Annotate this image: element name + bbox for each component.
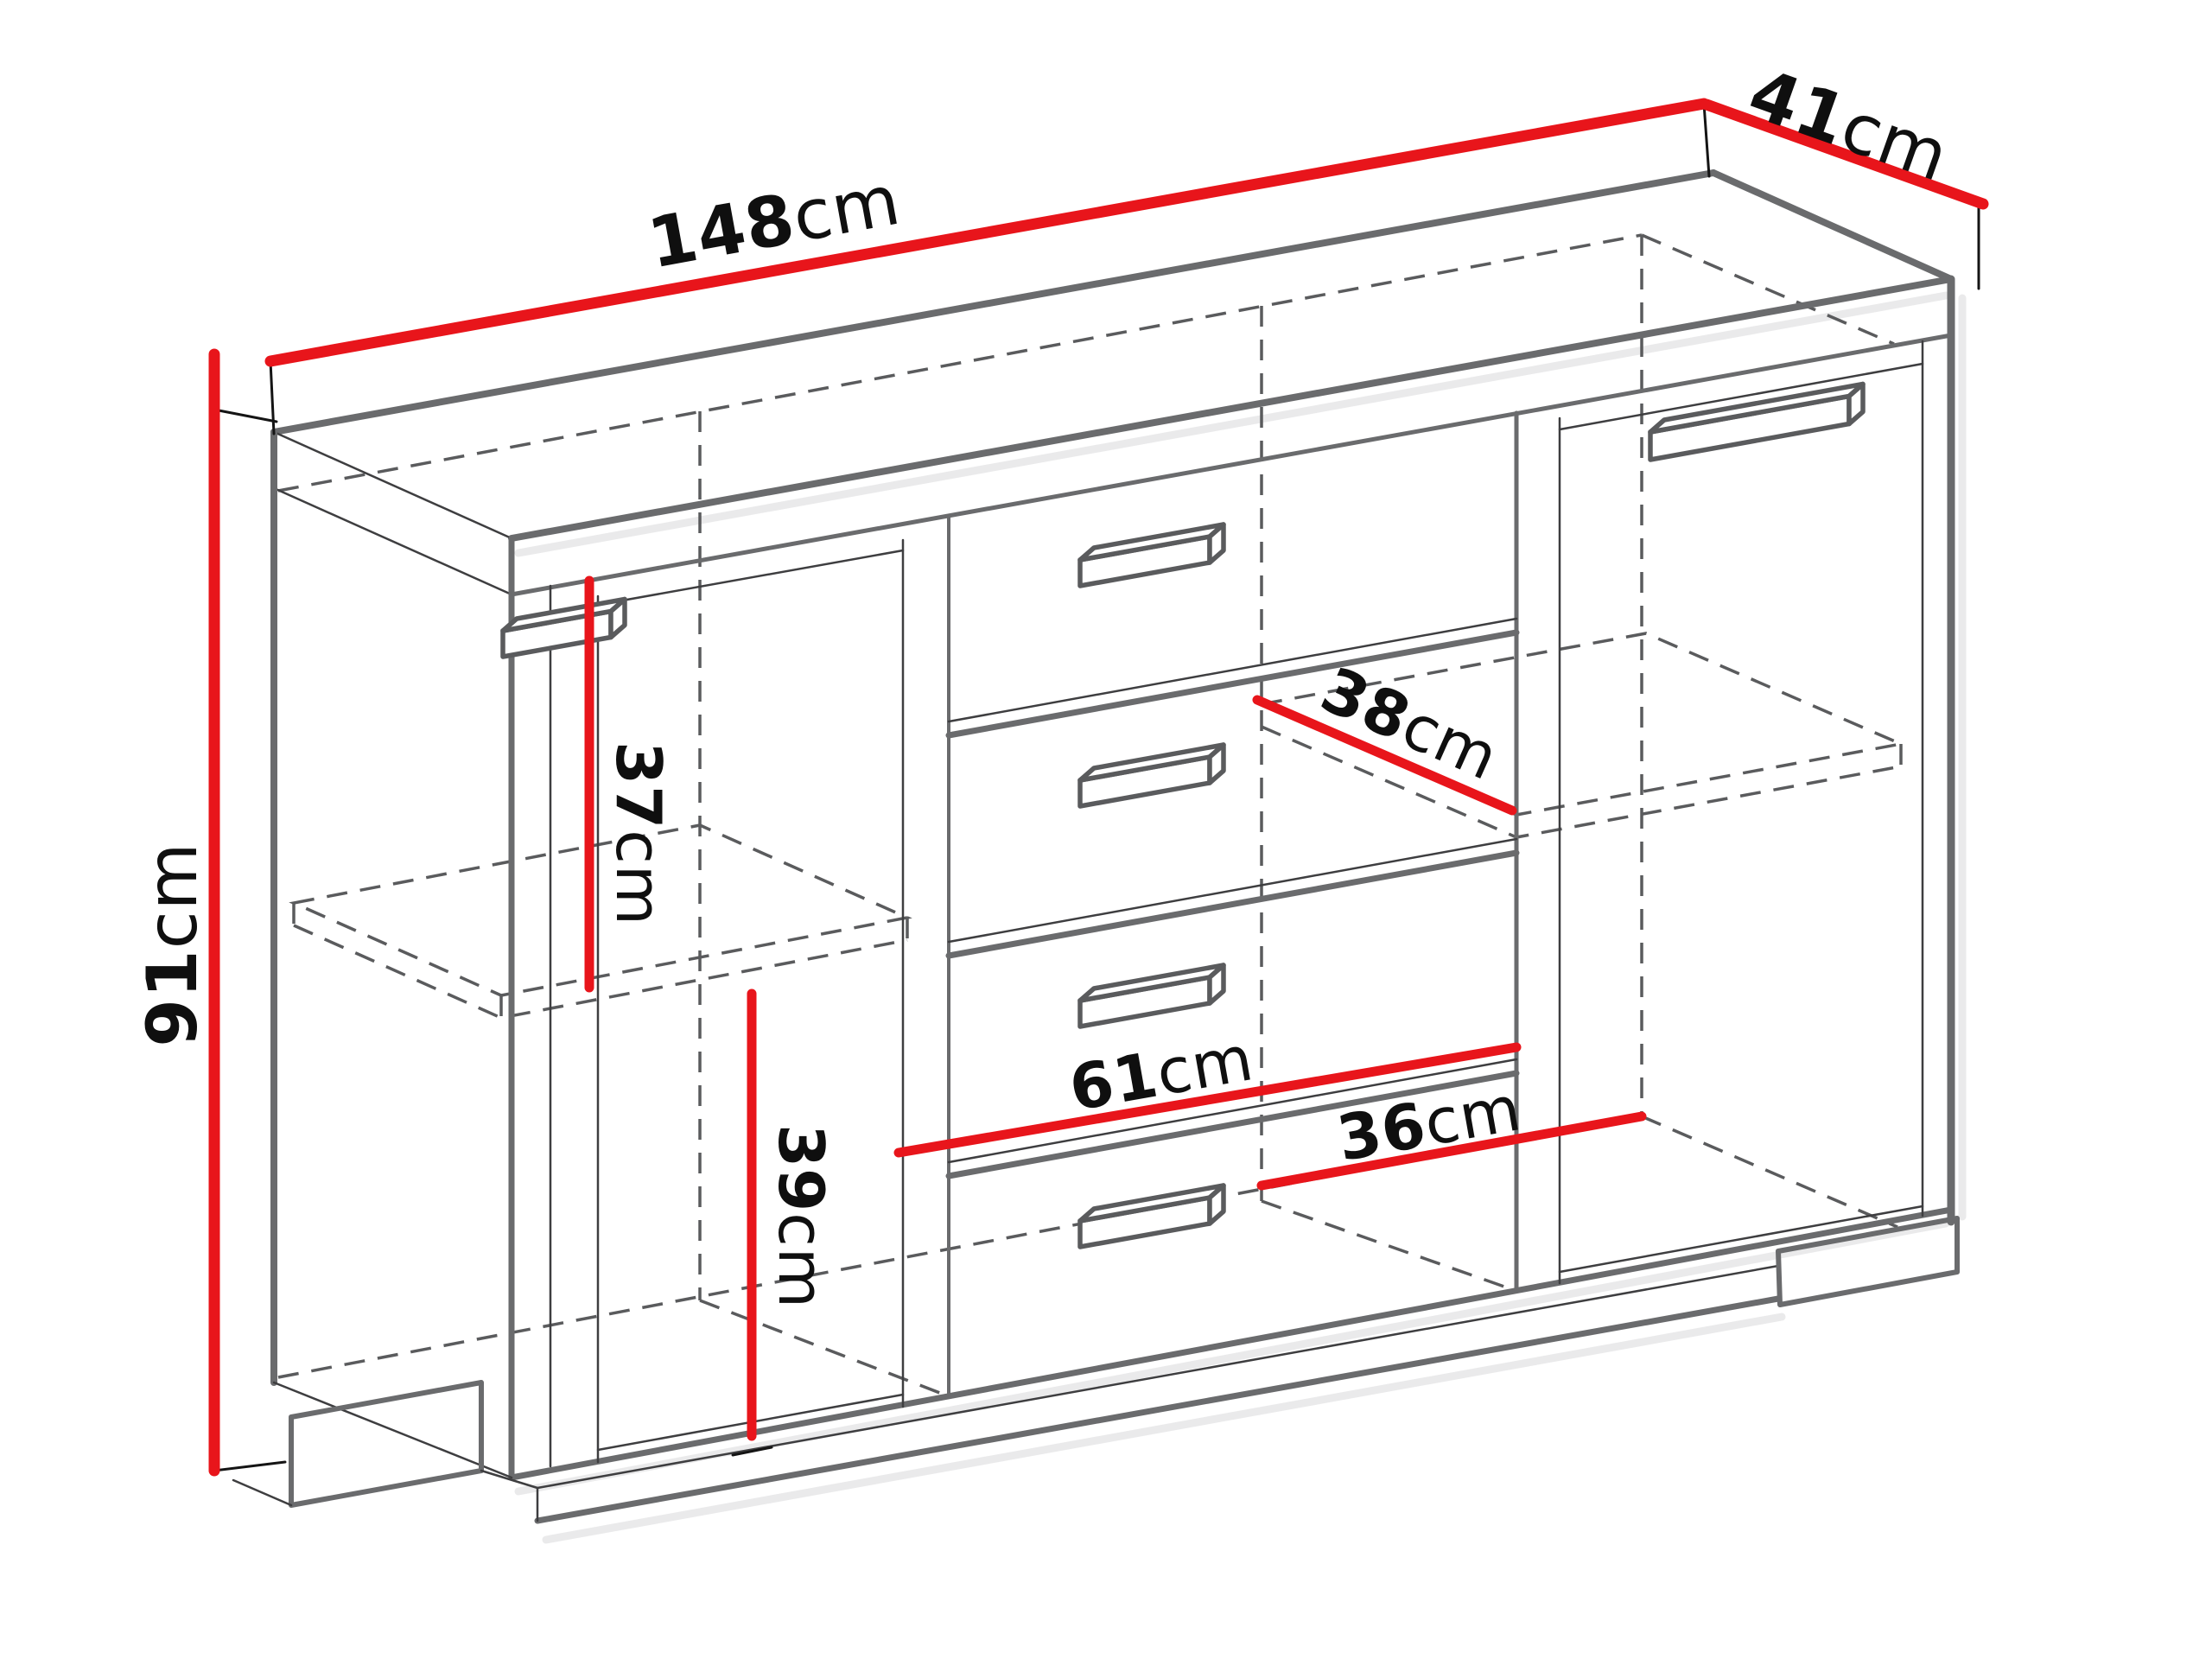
dimension-label-left-lower: 39cm [765,1124,837,1309]
dimension-label-depth: 41cm [1739,53,1960,197]
hidden-right-divider-bottom-diagonal [1262,1201,1516,1291]
shadow-under-plinth [546,1317,1782,1540]
drawer-gap-2 [949,839,1516,942]
extension-tick-91-bottom [214,1462,285,1471]
right-door-handle [1650,385,1863,461]
shadow-under-bottom [518,1224,1946,1491]
top-left-edge [274,432,512,538]
right-foot [1778,1218,1957,1305]
middle-width-value: 61 [1064,1038,1163,1124]
plinth-top-edge [537,1266,1778,1488]
cabinet-body [274,173,1951,1478]
hidden-left-shelf [294,825,907,1018]
dimension-label-height: 91cm [132,842,213,1046]
left-lower-unit: cm [765,1212,837,1309]
dimension-line-width-148 [270,104,1704,361]
dimension-label-left-upper: 37cm [602,741,675,926]
furniture-dimension-diagram: 148cm 41cm 91cm 37cm 39cm 38cm 61cm 36cm [0,0,2212,1659]
hidden-back-top-edge [278,235,1642,491]
right-door [1560,364,1923,1283]
right-width-unit: cm [1419,1071,1527,1160]
drawer-separator-2 [949,853,1516,956]
plinth-bottom-edge [537,1299,1778,1521]
hidden-back-bottom-right-diagonal [1642,1116,1897,1227]
extension-tick-148-right [1704,104,1709,176]
extension-tick-91-top [214,410,276,422]
left-upper-unit: cm [602,829,675,926]
top-slab-left-thickness [274,488,512,594]
height-value: 91 [132,949,213,1046]
drawer-handle-1 [1080,524,1224,586]
left-shelf-edge-ticks [294,903,907,1018]
handles [503,385,1863,1248]
top-back-edge [274,173,1713,432]
left-shelf-top-face [294,825,907,995]
drawer-handle-2 [1080,745,1224,806]
right-shelf-edge-ticks [1516,744,1901,837]
left-upper-value: 37 [602,741,675,829]
shadow-lines [518,296,1962,1540]
drawer-handle-4 [1080,1185,1224,1247]
extension-tick-148-left [270,361,274,434]
top-slab-bottom-front-edge [512,335,1951,594]
hidden-left-divider-bottom-diagonal [700,1300,949,1396]
drawer-handle-3 [1080,965,1224,1027]
left-shelf-thickness [294,925,907,1018]
height-unit: cm [132,842,213,949]
drawer-column [949,413,1516,1396]
dimension-labels: 148cm 41cm 91cm 37cm 39cm 38cm 61cm 36cm [132,53,1959,1309]
left-door-top-edge [598,550,903,605]
left-door-handle [503,600,625,658]
left-foot-back-diagonal [233,1480,291,1505]
dimension-label-shelf-depth: 38cm [1311,652,1510,794]
dimension-label-middle-width: 61cm [1064,1021,1258,1125]
left-lower-value: 39 [765,1124,837,1212]
width-unit: cm [786,160,906,258]
right-width-value: 36 [1332,1088,1431,1174]
bottom-front-edge [512,1210,1951,1478]
